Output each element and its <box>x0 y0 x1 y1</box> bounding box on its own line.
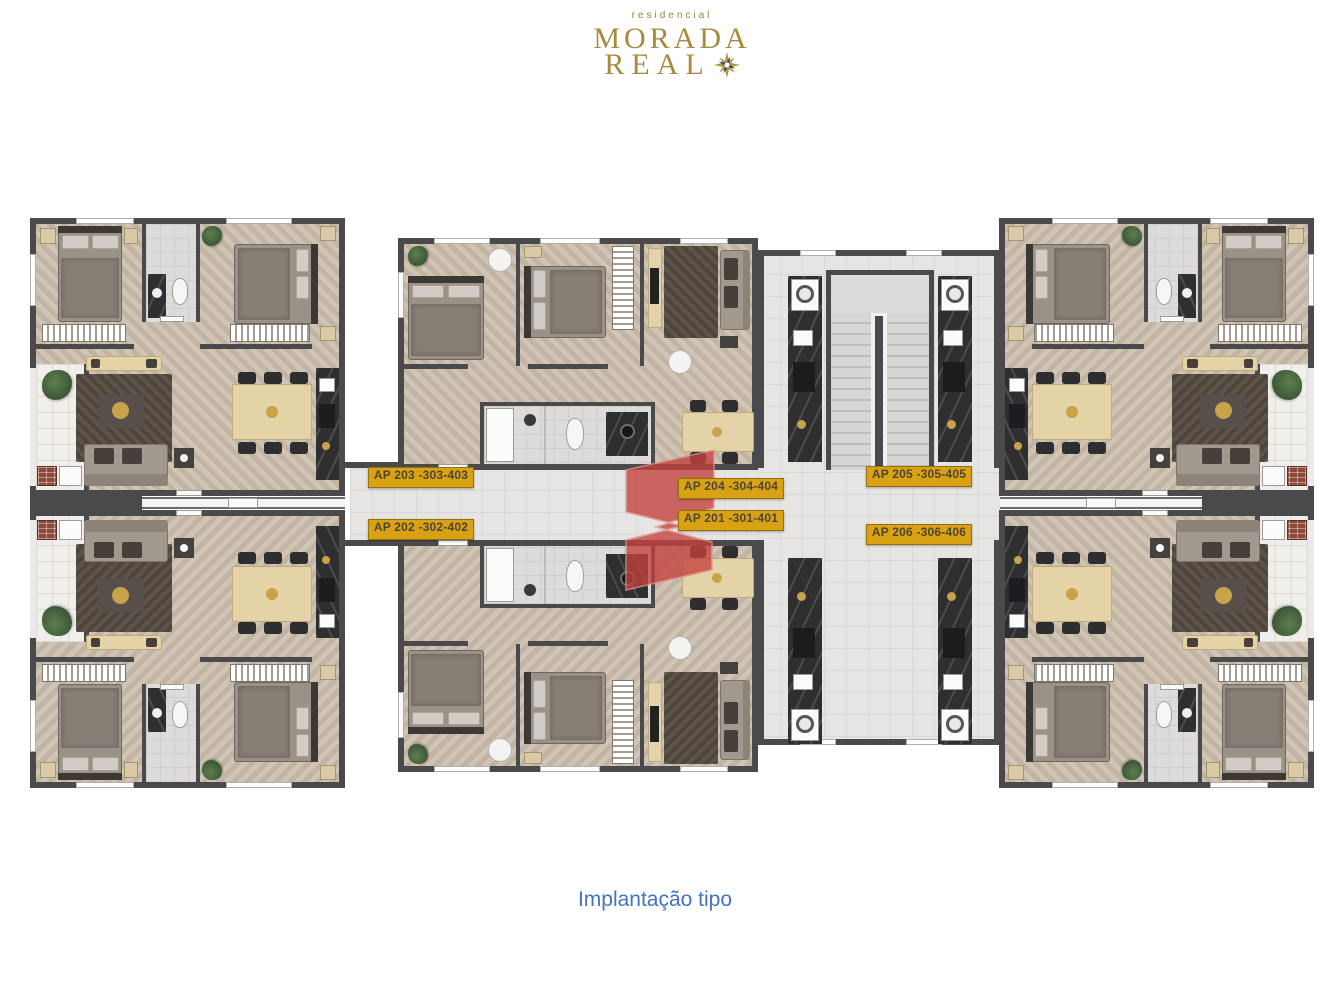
plant-icon <box>1122 760 1142 780</box>
wall <box>1198 218 1202 322</box>
nightstand <box>1008 665 1024 680</box>
window <box>1052 782 1118 788</box>
blanket <box>1225 258 1283 318</box>
pillow <box>533 270 546 298</box>
wall <box>345 540 403 546</box>
window <box>30 700 36 752</box>
sofa-back <box>743 250 750 330</box>
centerpiece <box>266 406 278 418</box>
apartment-label-ap-204: AP 204 -304-404 <box>678 478 784 499</box>
decor-vase <box>180 544 188 552</box>
chair <box>1036 552 1054 564</box>
chair <box>722 598 738 610</box>
decor-item <box>146 638 157 647</box>
cushion <box>122 448 142 464</box>
nightstand <box>320 665 336 680</box>
nightstand <box>524 246 542 258</box>
nightstand <box>1206 762 1220 778</box>
wall <box>1032 344 1144 349</box>
cushion <box>122 542 142 558</box>
wardrobe <box>612 246 634 330</box>
chair <box>1036 442 1054 454</box>
window <box>226 782 292 788</box>
blanket <box>550 270 602 334</box>
kitchen-sink <box>943 674 963 690</box>
wall <box>36 344 134 349</box>
entry-door <box>1142 510 1168 516</box>
decor-vase <box>180 454 188 462</box>
bed-headboard <box>1026 682 1033 762</box>
wall <box>339 218 345 496</box>
logo-title-line2-text: REAL <box>604 48 710 81</box>
side-table <box>720 662 738 674</box>
nightstand <box>1008 226 1024 241</box>
chair <box>264 442 282 454</box>
pillow <box>296 249 309 272</box>
caption-text: Implantação tipo <box>578 888 732 911</box>
washing-machine-door <box>946 715 964 733</box>
apartment-label-ap-205: AP 205 -305-405 <box>866 466 972 487</box>
shower-head <box>524 414 536 426</box>
tv <box>650 268 659 304</box>
chair <box>1088 372 1106 384</box>
wardrobe <box>42 664 126 682</box>
armchair <box>668 350 692 374</box>
window <box>398 692 404 738</box>
barbecue-grill <box>1287 520 1307 540</box>
decor-vase <box>1156 454 1164 462</box>
decor-item <box>1014 442 1022 450</box>
shower-partition <box>544 406 546 464</box>
apartment-label-ap-202: AP 202 -302-402 <box>368 519 474 540</box>
logo-title-line2: REAL <box>512 48 832 82</box>
decor-vase <box>1156 544 1164 552</box>
nightstand <box>1288 228 1304 244</box>
cushion <box>94 542 114 558</box>
window <box>906 250 942 256</box>
chair <box>1036 372 1054 384</box>
plant-icon <box>408 744 428 764</box>
sofa-back <box>743 680 750 760</box>
wall <box>196 684 200 788</box>
apartment-label-ap-206: AP 206 -306-406 <box>866 524 972 545</box>
chair <box>722 400 738 412</box>
bed-headboard <box>408 276 484 283</box>
wall <box>404 364 468 369</box>
nightstand <box>320 326 336 341</box>
sofa-back <box>84 474 168 486</box>
window <box>226 218 292 224</box>
wall <box>200 657 312 662</box>
chair <box>1062 372 1080 384</box>
pillow <box>1255 757 1282 771</box>
apartment-ap-203 <box>30 218 345 496</box>
pillow <box>448 712 480 725</box>
chair <box>690 400 706 412</box>
shower-head <box>524 584 536 596</box>
window <box>434 766 490 772</box>
chair <box>290 622 308 634</box>
balcony-cabinet <box>59 466 82 486</box>
bed-headboard <box>408 727 484 734</box>
blanket <box>238 686 290 758</box>
cushion <box>94 448 114 464</box>
nightstand <box>320 765 336 780</box>
balcony-opening <box>1308 368 1314 486</box>
wall <box>480 604 655 608</box>
decor-bowl <box>112 587 129 604</box>
wall <box>758 250 1000 256</box>
cushion <box>724 286 738 308</box>
pillow <box>448 285 480 298</box>
wall <box>1144 684 1148 788</box>
washing-machine-door <box>796 285 814 303</box>
apartment-ap-202 <box>30 510 345 788</box>
nightstand <box>1008 765 1024 780</box>
decor-item <box>322 442 330 450</box>
window <box>1308 700 1314 752</box>
chair <box>1088 442 1106 454</box>
wall <box>758 250 764 468</box>
centerpiece <box>712 427 722 437</box>
chair <box>264 622 282 634</box>
balcony-cabinet <box>1262 520 1285 540</box>
nightstand <box>1288 762 1304 778</box>
wall <box>1210 344 1308 349</box>
cushion <box>1230 448 1250 464</box>
window <box>1210 782 1268 788</box>
bed-headboard <box>1222 773 1286 780</box>
pillow <box>1035 249 1048 272</box>
wall <box>30 496 142 510</box>
chair <box>238 622 256 634</box>
wall <box>1144 218 1148 322</box>
wall <box>929 270 934 470</box>
pillow <box>533 712 546 740</box>
pillow <box>533 302 546 330</box>
decor-item <box>947 420 956 429</box>
window <box>1308 254 1314 306</box>
wall <box>640 644 644 772</box>
nightstand <box>40 228 56 244</box>
wall <box>339 510 345 788</box>
kitchen-sink <box>793 330 813 346</box>
wardrobe <box>1218 664 1302 682</box>
blanket <box>238 248 290 320</box>
kitchen-sink <box>1009 378 1025 392</box>
pillow <box>62 757 89 771</box>
kitchen-sink <box>319 614 335 628</box>
pillow <box>533 680 546 708</box>
chair <box>290 442 308 454</box>
blanket <box>550 676 602 740</box>
chair <box>1088 622 1106 634</box>
cushion <box>1230 542 1250 558</box>
pillow <box>296 276 309 299</box>
plant-icon <box>202 760 222 780</box>
plant-icon <box>1272 606 1302 636</box>
bathroom-door <box>1160 316 1184 322</box>
window <box>398 272 404 318</box>
window <box>680 238 728 244</box>
chair <box>238 442 256 454</box>
window <box>434 238 490 244</box>
chair <box>690 598 706 610</box>
bed-headboard <box>58 226 122 233</box>
plant-icon <box>1272 370 1302 400</box>
entry-door <box>176 510 202 516</box>
bed-headboard <box>1026 244 1033 324</box>
entry-door <box>438 540 468 546</box>
apartment-ap-206 <box>999 510 1314 788</box>
armchair <box>488 738 512 762</box>
toilet <box>172 278 188 305</box>
bed-headboard <box>524 266 531 338</box>
nightstand <box>40 762 56 778</box>
toilet <box>566 560 584 592</box>
pillow <box>92 757 119 771</box>
chair <box>1062 442 1080 454</box>
nightstand <box>524 752 542 764</box>
wardrobe <box>1218 324 1302 342</box>
wall <box>1210 657 1308 662</box>
chair <box>290 372 308 384</box>
entry-door <box>1086 498 1116 508</box>
bed-headboard <box>1222 226 1286 233</box>
chair <box>264 372 282 384</box>
wall <box>404 641 468 646</box>
kitchen-sink <box>1009 614 1025 628</box>
decor-bowl <box>1215 587 1232 604</box>
wardrobe <box>42 324 126 342</box>
decor-bowl <box>112 402 129 419</box>
logo: residencial MORADA REAL <box>512 10 832 82</box>
decor-bowl <box>1215 402 1232 419</box>
stair-rail <box>875 316 883 470</box>
rug <box>664 246 718 338</box>
cushion <box>724 258 738 280</box>
pillow <box>1225 235 1252 249</box>
kitchen-sink <box>319 378 335 392</box>
decor-item <box>1187 638 1198 647</box>
wall <box>758 540 764 745</box>
wardrobe <box>230 324 310 342</box>
centerpiece <box>266 588 278 600</box>
cushion <box>1202 448 1222 464</box>
cooktop <box>1009 578 1025 602</box>
window <box>76 218 134 224</box>
shower-partition <box>544 546 546 604</box>
decor-item <box>91 638 100 647</box>
toilet <box>566 418 584 450</box>
chair <box>238 552 256 564</box>
cooktop <box>1009 404 1025 428</box>
washing-machine-door <box>796 715 814 733</box>
pillow <box>1255 235 1282 249</box>
chair <box>264 552 282 564</box>
barbecue-grill <box>1287 466 1307 486</box>
decor-item <box>1187 359 1198 368</box>
wardrobe <box>230 664 310 682</box>
armchair <box>488 248 512 272</box>
sofa-back <box>1176 474 1260 486</box>
blanket <box>1054 686 1106 758</box>
bed-headboard <box>311 682 318 762</box>
decor-item <box>1244 359 1253 368</box>
blanket <box>1225 688 1283 748</box>
apartment-ap-204 <box>398 238 758 470</box>
toilet <box>1156 701 1172 728</box>
kitchen-sink <box>793 674 813 690</box>
blanket <box>411 304 481 356</box>
bathroom-door <box>160 316 184 322</box>
nightstand <box>1008 326 1024 341</box>
sink <box>1182 288 1192 298</box>
plant-icon <box>1122 226 1142 246</box>
entry-door <box>228 498 258 508</box>
window <box>540 238 600 244</box>
toilet <box>1156 278 1172 305</box>
pillow <box>412 712 444 725</box>
balcony-cabinet <box>59 520 82 540</box>
window <box>680 766 728 772</box>
wall <box>196 218 200 322</box>
decor-item <box>1014 556 1022 564</box>
cooktop <box>793 362 815 392</box>
chair <box>1088 552 1106 564</box>
window <box>800 250 836 256</box>
window <box>906 739 942 745</box>
window <box>30 254 36 306</box>
barbecue-grill <box>37 520 57 540</box>
pillow <box>296 734 309 757</box>
wall <box>528 364 608 369</box>
wardrobe <box>612 680 634 764</box>
pillow <box>412 285 444 298</box>
sink <box>152 708 162 718</box>
nightstand <box>124 228 138 244</box>
toilet <box>172 701 188 728</box>
decor-item <box>146 359 157 368</box>
bathroom-door <box>160 684 184 690</box>
balcony-opening <box>1308 520 1314 638</box>
caption: Implantação tipo <box>0 888 1344 912</box>
cushion <box>1202 542 1222 558</box>
cooktop <box>319 578 335 602</box>
chair <box>1062 622 1080 634</box>
pillow <box>1035 734 1048 757</box>
pillow <box>1035 707 1048 730</box>
centerpiece <box>1066 406 1078 418</box>
decor-item <box>91 359 100 368</box>
apartment-ap-205 <box>999 218 1314 496</box>
apartment-label-ap-203: AP 203 -303-403 <box>368 467 474 488</box>
washing-machine-door <box>946 285 964 303</box>
barbecue-grill <box>37 466 57 486</box>
wall <box>640 238 644 366</box>
chair <box>290 552 308 564</box>
nightstand <box>320 226 336 241</box>
pillow <box>1225 757 1252 771</box>
pillow <box>62 235 89 249</box>
cooktop <box>943 362 965 392</box>
blanket <box>1054 248 1106 320</box>
entry-door <box>1142 490 1168 496</box>
pillow <box>296 707 309 730</box>
wall <box>516 644 520 772</box>
apartment-label-ap-201: AP 201 -301-401 <box>678 510 784 531</box>
stair-landing <box>831 275 929 313</box>
nightstand <box>1206 228 1220 244</box>
bed-headboard <box>58 773 122 780</box>
pillow <box>92 235 119 249</box>
decor-item <box>322 556 330 564</box>
cushion <box>724 730 738 752</box>
sofa-back <box>84 520 168 532</box>
chair <box>722 452 738 464</box>
decor-item <box>797 592 806 601</box>
rug <box>664 672 718 764</box>
decor-item <box>1244 638 1253 647</box>
logo-tagline: residencial <box>512 10 832 21</box>
window <box>76 782 134 788</box>
cushion <box>724 702 738 724</box>
sofa-back <box>1176 520 1260 532</box>
balcony-cabinet <box>1262 466 1285 486</box>
star-burst-icon <box>714 52 740 78</box>
side-table <box>720 336 738 348</box>
wardrobe <box>1034 664 1114 682</box>
wall <box>200 344 312 349</box>
wall <box>516 238 520 366</box>
wall <box>1202 496 1314 510</box>
window <box>1210 218 1268 224</box>
plant-icon <box>42 606 72 636</box>
bathroom-door <box>1160 684 1184 690</box>
wall <box>36 657 134 662</box>
decor-item <box>947 592 956 601</box>
wardrobe <box>1034 324 1114 342</box>
wall <box>528 641 608 646</box>
chair <box>722 546 738 558</box>
chair <box>1062 552 1080 564</box>
blanket <box>61 258 119 318</box>
chair <box>1036 622 1054 634</box>
decor-item <box>797 420 806 429</box>
wall <box>1198 684 1202 788</box>
kitchen-sink <box>943 330 963 346</box>
cooktop <box>319 404 335 428</box>
bathroom-door <box>486 548 514 602</box>
chair <box>238 372 256 384</box>
window <box>540 766 600 772</box>
cooktop <box>793 628 815 658</box>
armchair <box>668 636 692 660</box>
bed-headboard <box>524 672 531 744</box>
bed-headboard <box>311 244 318 324</box>
window <box>1052 218 1118 224</box>
floor-plan-page: residencial MORADA REAL <box>0 0 1344 1008</box>
pillow <box>1035 276 1048 299</box>
blanket <box>61 688 119 748</box>
tv <box>650 706 659 742</box>
bathroom-door <box>486 408 514 462</box>
nightstand <box>124 762 138 778</box>
cooktop <box>943 628 965 658</box>
sink <box>1182 708 1192 718</box>
sink <box>620 424 635 439</box>
sink <box>152 288 162 298</box>
